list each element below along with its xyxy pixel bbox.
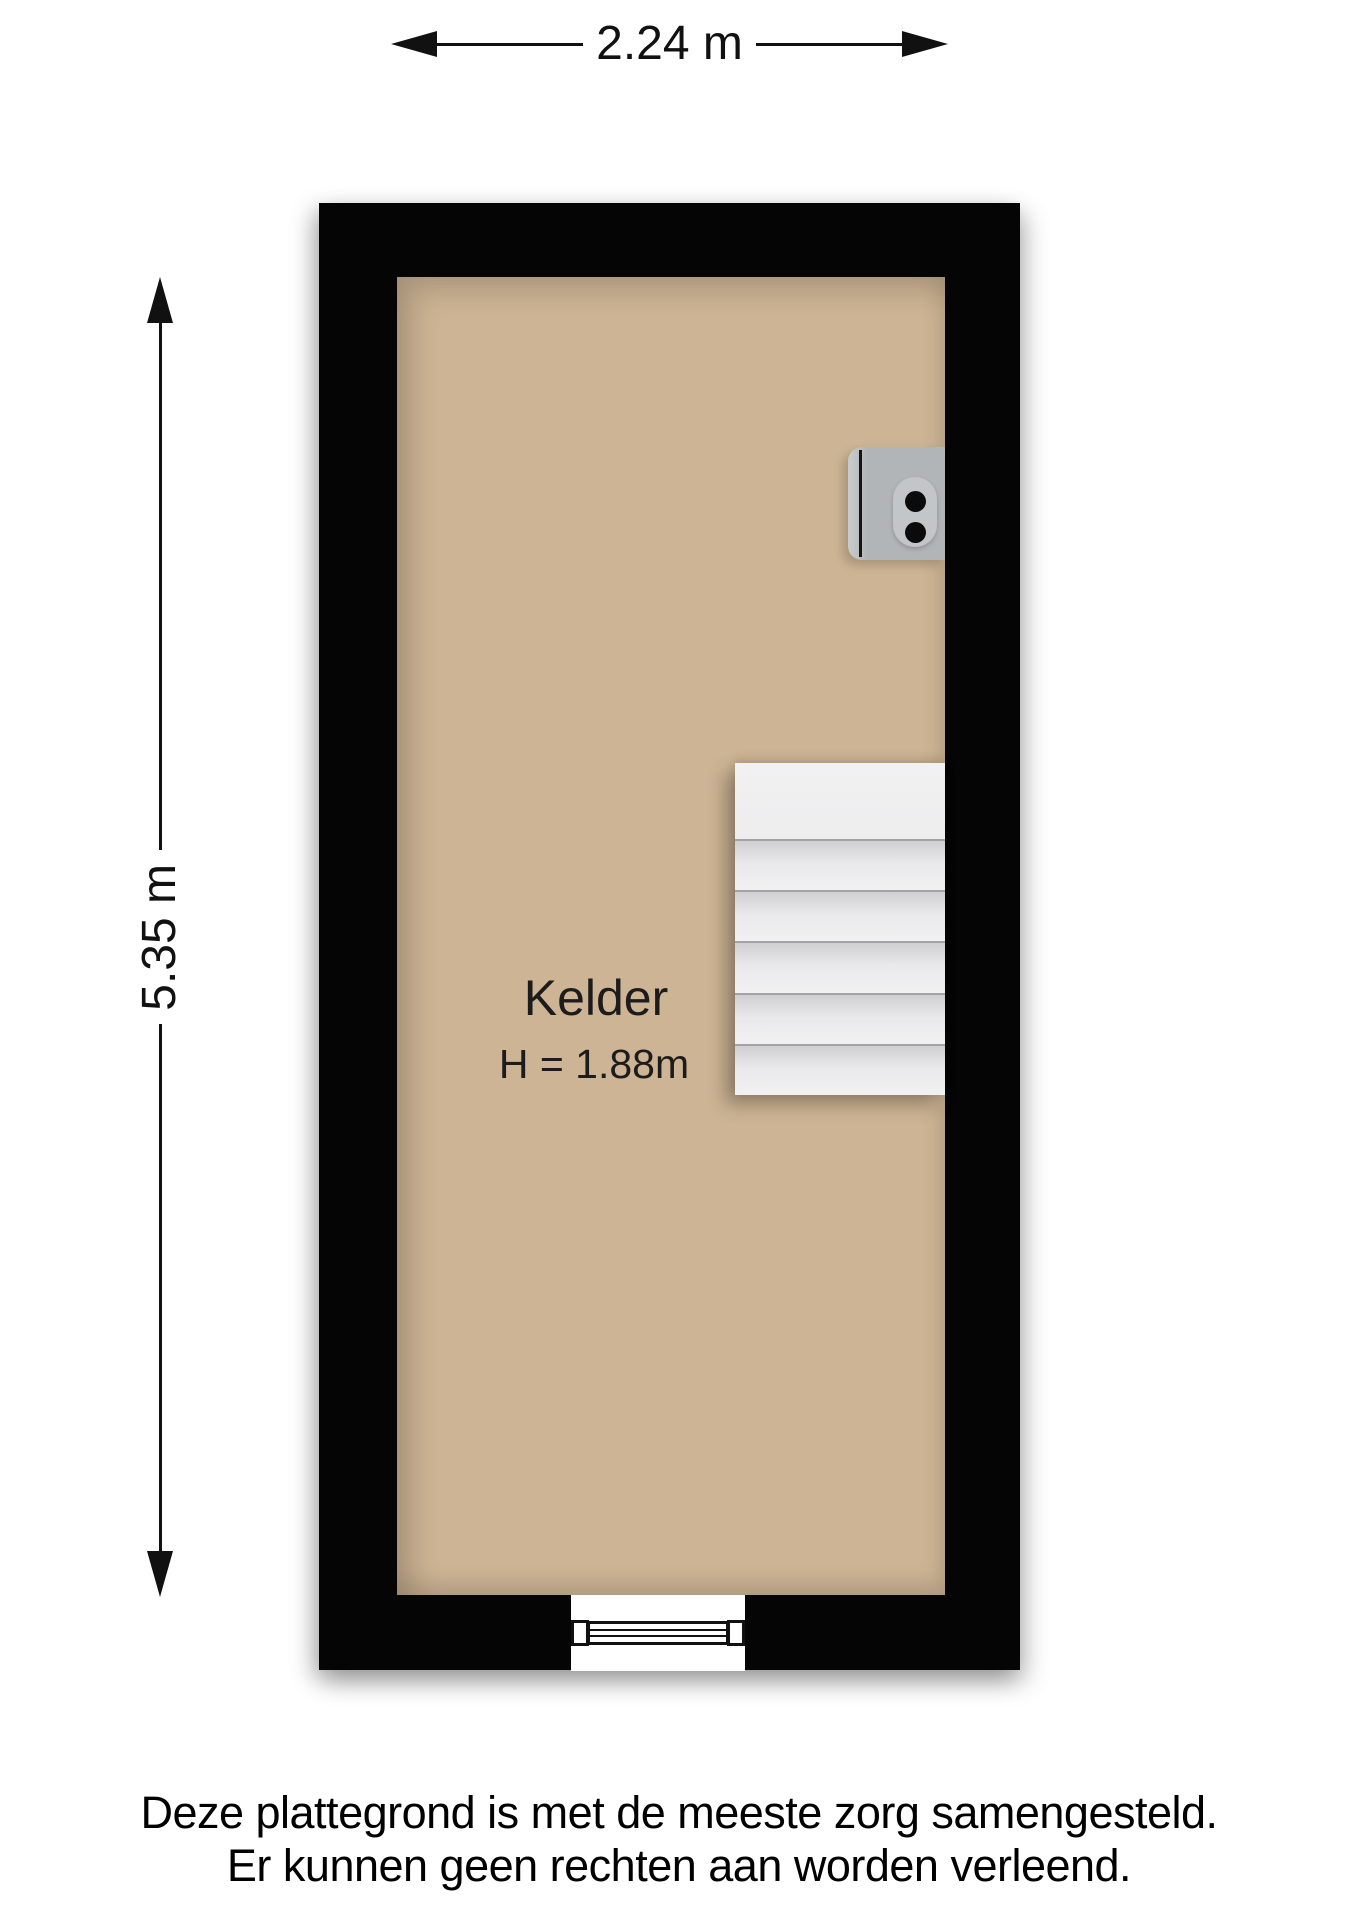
disclaimer-line-1: Deze plattegrond is met de meeste zorg s… [0, 1786, 1358, 1839]
stair-steps [735, 839, 945, 1095]
stair-tread [735, 993, 945, 1044]
boiler-top-view-icon [848, 447, 945, 560]
window-symbol [571, 1620, 745, 1646]
pipe-connection-icon [905, 522, 926, 543]
window-glazing [587, 1621, 729, 1645]
arrow-down-icon [147, 1551, 173, 1597]
stair-tread [735, 839, 945, 890]
disclaimer-line-2: Er kunnen geen rechten aan worden verlee… [0, 1839, 1358, 1892]
dimension-line [756, 43, 902, 46]
dimension-line [437, 43, 583, 46]
height-dimension-label: 5.35 m [136, 850, 184, 1025]
pipe-connection-icon [905, 491, 926, 512]
room-name-label: Kelder [524, 972, 669, 1024]
dimension-line [159, 1024, 162, 1551]
arrow-left-icon [391, 31, 437, 57]
floor-plan-canvas: 2.24 m 5.35 m Kelder H = 1.88m [0, 0, 1358, 1920]
staircase [735, 763, 945, 1095]
stair-landing [735, 763, 945, 839]
arrow-right-icon [902, 31, 948, 57]
room-ceiling-height-label: H = 1.88m [499, 1042, 689, 1086]
stair-tread [735, 890, 945, 941]
fixture-divider-line [859, 450, 862, 557]
arrow-up-icon [147, 277, 173, 323]
width-dimension: 2.24 m [391, 22, 948, 66]
stair-tread [735, 941, 945, 992]
width-dimension-label: 2.24 m [583, 20, 756, 68]
window-pane-line [590, 1635, 726, 1637]
height-dimension: 5.35 m [139, 277, 181, 1597]
disclaimer-text: Deze plattegrond is met de meeste zorg s… [0, 1786, 1358, 1892]
stair-tread [735, 1044, 945, 1095]
window-pane-line [590, 1629, 726, 1631]
window-frame-right [727, 1620, 745, 1646]
dimension-line [159, 323, 162, 850]
